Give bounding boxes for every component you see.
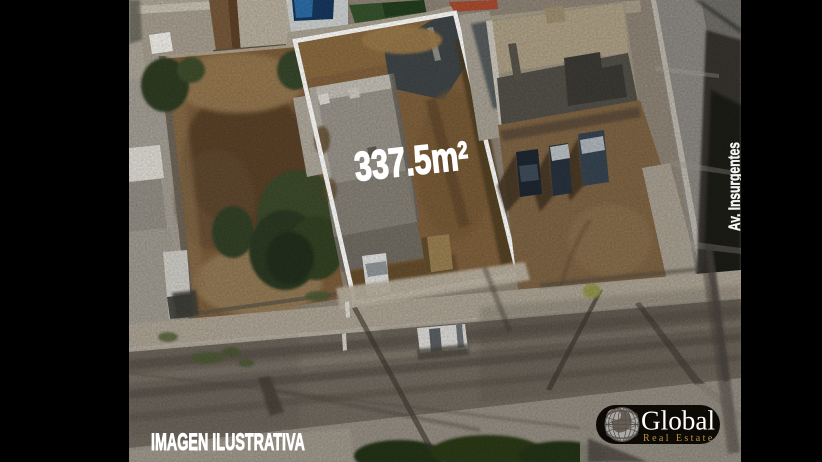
svg-text:IMAGEN ILUSTRATIVA: IMAGEN ILUSTRATIVA [151, 429, 305, 456]
svg-text:Global: Global [641, 406, 715, 436]
svg-text:Real Estate: Real Estate [643, 433, 715, 444]
